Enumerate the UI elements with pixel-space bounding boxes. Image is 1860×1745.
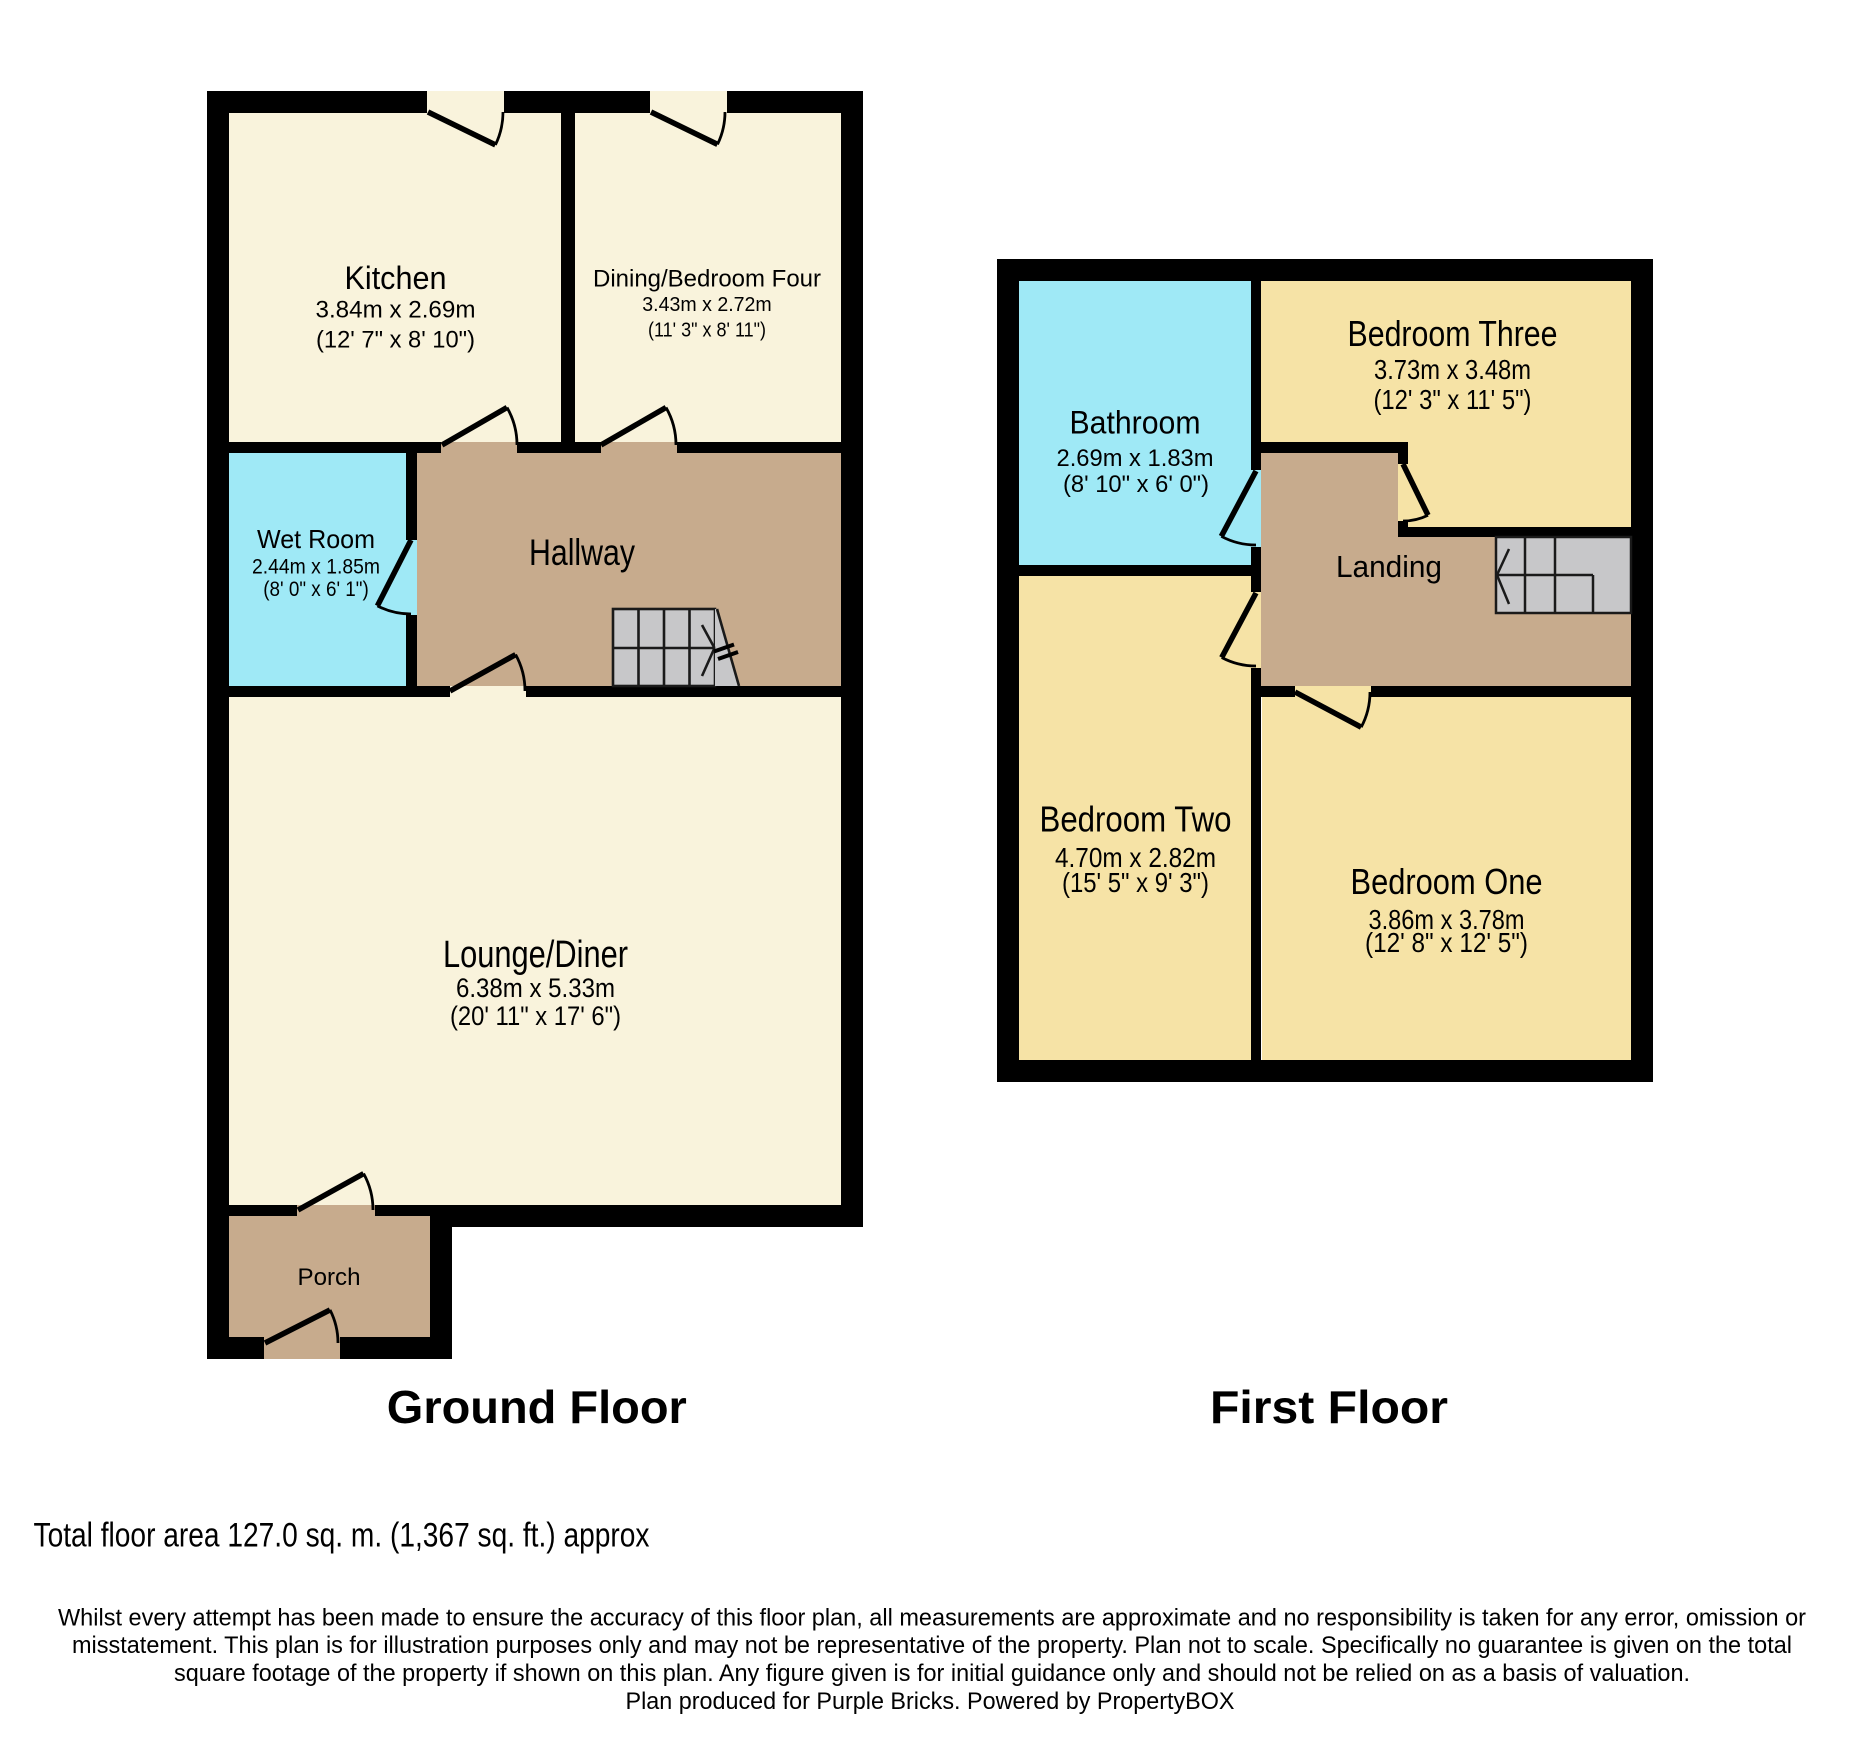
svg-text:Hallway: Hallway	[529, 532, 635, 573]
svg-text:Porch: Porch	[298, 1264, 361, 1291]
svg-text:Whilst every attempt has been: Whilst every attempt has been made to en…	[58, 1605, 1806, 1632]
svg-text:Landing: Landing	[1336, 549, 1442, 584]
svg-text:misstatement. This plan is for: misstatement. This plan is for illustrat…	[72, 1632, 1792, 1659]
svg-text:Bedroom One: Bedroom One	[1351, 861, 1543, 902]
svg-text:Ground Floor: Ground Floor	[387, 1381, 687, 1433]
svg-text:Bedroom Three: Bedroom Three	[1348, 313, 1558, 354]
svg-text:Plan produced for Purple Brick: Plan produced for Purple Bricks. Powered…	[626, 1688, 1235, 1715]
svg-text:Bathroom: Bathroom	[1070, 405, 1201, 441]
svg-text:3.43m x 2.72m: 3.43m x 2.72m	[642, 294, 772, 316]
svg-text:(12' 8" x 12' 5"): (12' 8" x 12' 5")	[1365, 927, 1528, 958]
svg-text:Wet Room: Wet Room	[257, 524, 375, 554]
svg-text:Dining/Bedroom Four: Dining/Bedroom Four	[593, 265, 821, 292]
svg-text:(12' 7" x 8' 10"): (12' 7" x 8' 10")	[316, 327, 475, 354]
svg-text:Total floor area 127.0 sq. m.: Total floor area 127.0 sq. m. (1,367 sq.…	[34, 1517, 650, 1555]
svg-text:square footage of the property: square footage of the property if shown …	[174, 1660, 1690, 1687]
svg-text:(8' 0" x 6' 1"): (8' 0" x 6' 1")	[263, 578, 369, 601]
svg-text:6.38m x 5.33m: 6.38m x 5.33m	[456, 973, 615, 1003]
svg-text:(15' 5" x 9' 3"): (15' 5" x 9' 3")	[1062, 867, 1209, 898]
svg-text:(11' 3" x 8' 11"): (11' 3" x 8' 11")	[648, 320, 766, 342]
svg-text:Bedroom Two: Bedroom Two	[1040, 799, 1232, 840]
svg-text:3.73m x 3.48m: 3.73m x 3.48m	[1374, 354, 1531, 385]
svg-text:First Floor: First Floor	[1210, 1381, 1448, 1433]
svg-text:(8' 10" x 6' 0"): (8' 10" x 6' 0")	[1063, 471, 1209, 498]
svg-text:(20' 11" x 17' 6"): (20' 11" x 17' 6")	[450, 1001, 621, 1031]
svg-text:Kitchen: Kitchen	[345, 260, 447, 296]
svg-text:3.84m x 2.69m: 3.84m x 2.69m	[316, 297, 476, 324]
svg-text:2.69m x 1.83m: 2.69m x 1.83m	[1057, 445, 1214, 472]
svg-text:Lounge/Diner: Lounge/Diner	[443, 934, 628, 976]
svg-text:2.44m x 1.85m: 2.44m x 1.85m	[252, 556, 380, 579]
svg-text:(12' 3" x 11' 5"): (12' 3" x 11' 5")	[1374, 384, 1532, 415]
